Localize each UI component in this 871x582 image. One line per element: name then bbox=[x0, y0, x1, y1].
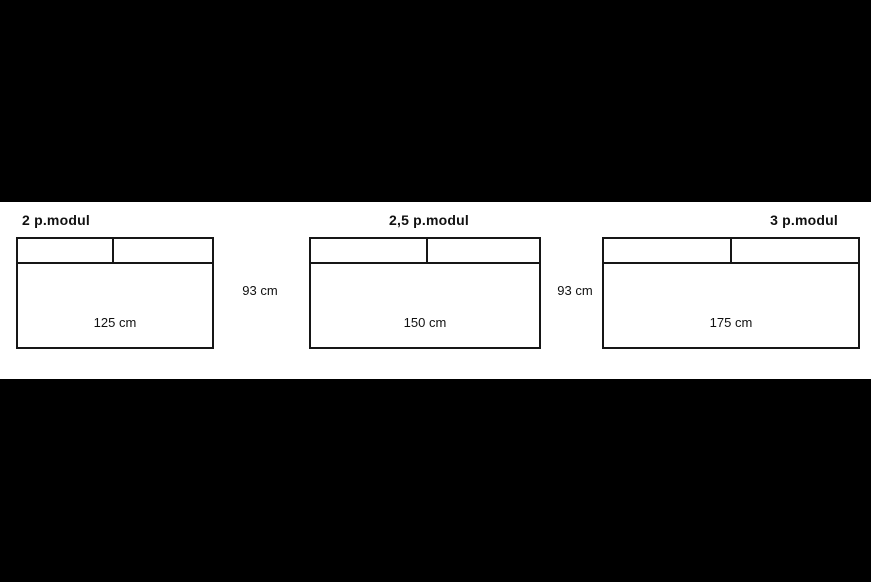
width-label-2p: 125 cm bbox=[18, 315, 212, 330]
module-outline-3p: 175 cm bbox=[602, 237, 860, 349]
module-outline-2-5p: 150 cm bbox=[309, 237, 541, 349]
backrest-2-5p bbox=[311, 239, 539, 264]
backrest-2p bbox=[18, 239, 212, 264]
depth-label-2: 93 cm bbox=[557, 283, 592, 298]
diagram-panel: 2 p.modul 125 cm 93 cm 2,5 p.modul 150 c… bbox=[0, 202, 871, 379]
depth-label-1: 93 cm bbox=[242, 283, 277, 298]
module-title-3p: 3 p.modul bbox=[770, 212, 838, 228]
backrest-3p bbox=[604, 239, 858, 264]
backrest-divider-2-5p bbox=[426, 239, 428, 262]
backrest-divider-2p bbox=[112, 239, 114, 262]
diagram-canvas: 2 p.modul 125 cm 93 cm 2,5 p.modul 150 c… bbox=[0, 0, 871, 582]
width-label-2-5p: 150 cm bbox=[311, 315, 539, 330]
module-title-2p: 2 p.modul bbox=[22, 212, 90, 228]
width-label-3p: 175 cm bbox=[604, 315, 858, 330]
module-outline-2p: 125 cm bbox=[16, 237, 214, 349]
backrest-divider-3p bbox=[730, 239, 732, 262]
module-title-2-5p: 2,5 p.modul bbox=[389, 212, 469, 228]
